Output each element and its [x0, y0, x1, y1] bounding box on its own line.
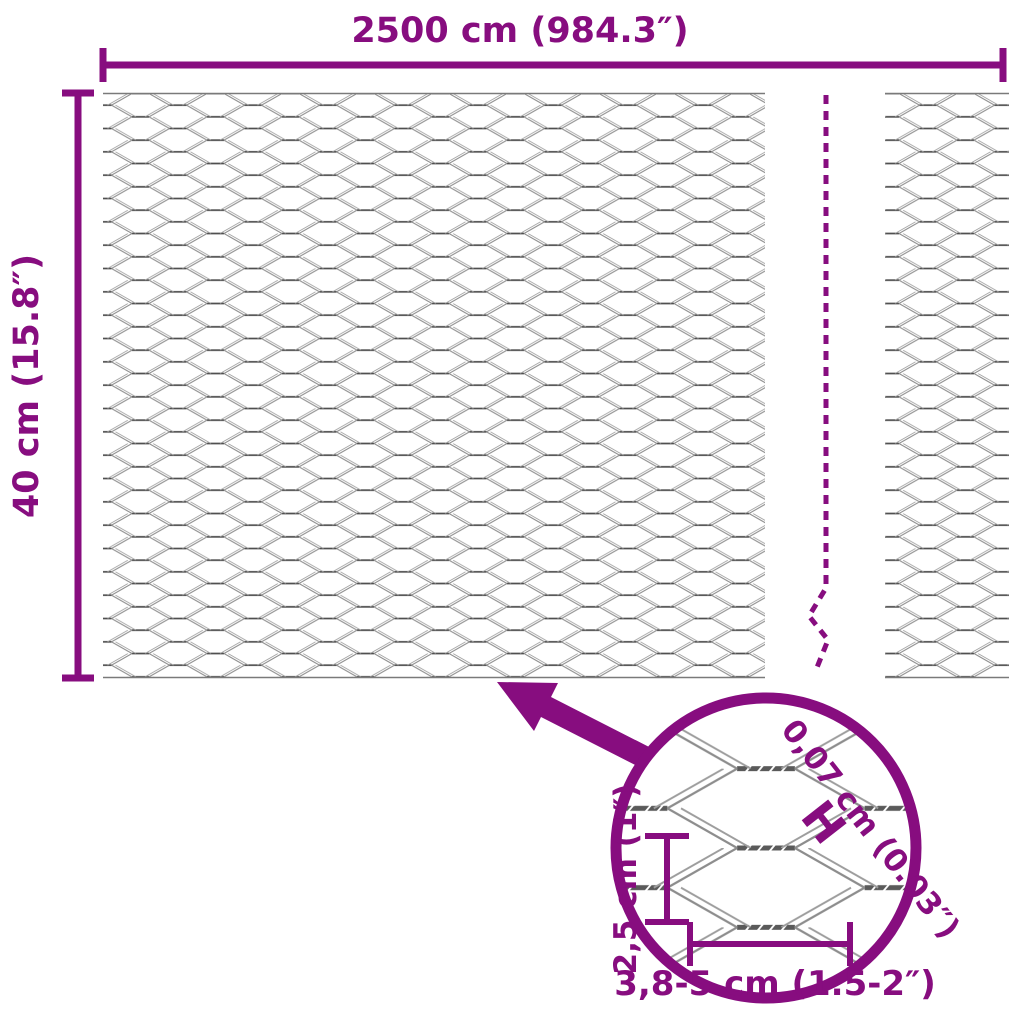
cell-width-label: 3,8-5 cm (1.5-2″): [614, 964, 936, 1004]
width-dimension-label: 2500 cm (984.3″): [351, 11, 688, 51]
height-dimension-label: 40 cm (15.8″): [7, 254, 47, 518]
width-dimension-line: [103, 48, 1003, 82]
zoom-arrow-icon: [497, 682, 655, 770]
mesh-panel-left: [103, 93, 765, 678]
panel-break-line: [809, 95, 828, 670]
height-dimension-line: [62, 93, 94, 678]
diagram-canvas: 2500 cm (984.3″) 40 cm (15.8″) 2,5 cm (1…: [0, 0, 1024, 1024]
detail-magnifier: 2,5 cm (1″) 3,8-5 cm (1.5-2″) 0,07 cm (0…: [608, 690, 967, 1006]
mesh-panel-right: [885, 93, 1009, 678]
product-dimension-diagram: 2500 cm (984.3″) 40 cm (15.8″) 2,5 cm (1…: [0, 0, 1024, 1024]
cell-height-label: 2,5 cm (1″): [608, 784, 644, 975]
